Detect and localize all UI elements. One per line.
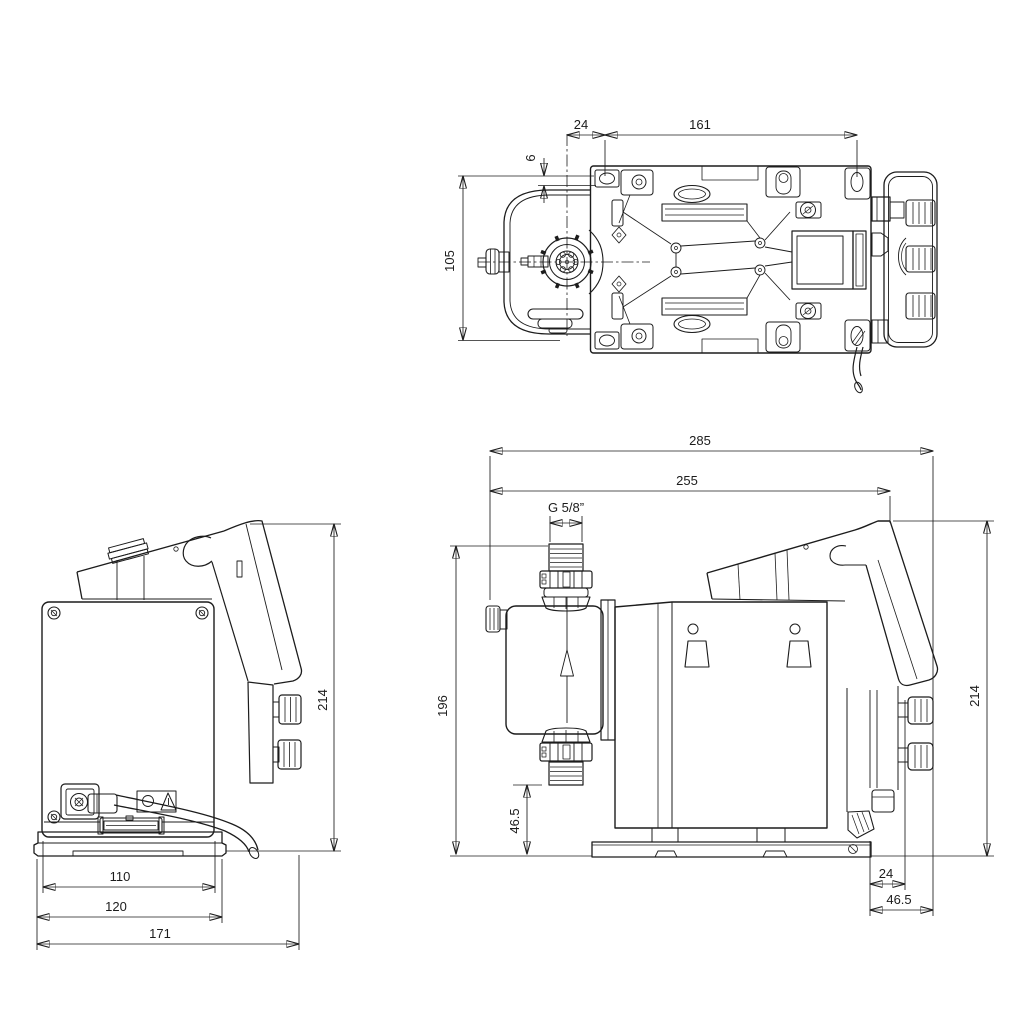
suction-nut bbox=[540, 743, 592, 761]
dim-label-120: 120 bbox=[105, 899, 127, 914]
top-view-motor-housing bbox=[591, 166, 872, 353]
side-base bbox=[592, 842, 871, 857]
dim-label-214-side: 214 bbox=[967, 685, 982, 707]
front-cable bbox=[114, 795, 261, 860]
rib-network bbox=[623, 212, 792, 307]
warning-label bbox=[137, 791, 176, 812]
top-view: 24 161 6 105 bbox=[442, 117, 937, 394]
keyhole-slots bbox=[766, 167, 800, 352]
dim-label-46-5-bottom: 46.5 bbox=[886, 892, 911, 907]
front-cover-panel bbox=[42, 602, 261, 860]
pump-dimensional-drawing: 24 161 6 105 bbox=[0, 0, 1024, 1024]
discharge-thread bbox=[549, 544, 583, 571]
dim-label-161: 161 bbox=[689, 117, 711, 132]
suction-thread bbox=[549, 762, 583, 785]
discharge-nut bbox=[540, 571, 592, 588]
front-view-console bbox=[77, 521, 302, 783]
screw-boss-pads bbox=[619, 170, 653, 349]
dim-label-6: 6 bbox=[523, 154, 538, 161]
dim-label-24-bottom: 24 bbox=[879, 866, 893, 881]
dim-label-110: 110 bbox=[110, 869, 131, 884]
rear-gland-knobs bbox=[898, 686, 933, 790]
handle-notch-side bbox=[830, 546, 846, 566]
console-slab-outline bbox=[224, 521, 302, 684]
front-view-dimensions: 214 110 120 171 bbox=[37, 524, 341, 950]
side-view-dimensions: 285 255 G 5/8” 196 46.5 214 24 46.5 bbox=[435, 433, 994, 916]
dim-label-214-front: 214 bbox=[315, 689, 330, 711]
dim-label-46-5-side: 46.5 bbox=[507, 808, 522, 833]
drawing-svg: 24 161 6 105 bbox=[0, 0, 1024, 1024]
top-plug-connector bbox=[107, 538, 150, 564]
head-side-knob bbox=[486, 606, 507, 632]
dim-label-255: 255 bbox=[676, 473, 698, 488]
cover-screws bbox=[48, 607, 208, 823]
dim-label-171: 171 bbox=[149, 926, 171, 941]
side-view: 285 255 G 5/8” 196 46.5 214 24 46.5 bbox=[435, 433, 994, 916]
front-knobs bbox=[273, 695, 301, 769]
screw-washer-details bbox=[796, 202, 821, 319]
oval-slots bbox=[674, 166, 758, 353]
side-slots-and-diamonds bbox=[612, 200, 626, 319]
wall-mount-keyholes bbox=[685, 624, 811, 667]
mains-connector bbox=[61, 784, 117, 819]
knob-strip bbox=[248, 682, 273, 783]
head-body bbox=[506, 606, 603, 734]
side-view-control-panel bbox=[707, 521, 938, 685]
dim-label-196: 196 bbox=[435, 695, 450, 717]
flow-direction-arrow bbox=[561, 597, 574, 723]
side-view-dosing-head bbox=[486, 544, 615, 785]
power-cable-top bbox=[853, 347, 864, 394]
dim-label-24-top: 24 bbox=[574, 117, 588, 132]
dim-label-105: 105 bbox=[442, 250, 457, 272]
dim-label-285: 285 bbox=[689, 433, 711, 448]
side-view-body bbox=[592, 602, 933, 857]
front-view: 214 110 120 171 bbox=[34, 521, 341, 950]
panel-slab bbox=[866, 521, 938, 685]
front-base bbox=[34, 816, 226, 856]
thread-size-label: G 5/8” bbox=[548, 500, 584, 515]
rib-bands bbox=[662, 204, 747, 315]
nameplate-block bbox=[792, 231, 866, 289]
